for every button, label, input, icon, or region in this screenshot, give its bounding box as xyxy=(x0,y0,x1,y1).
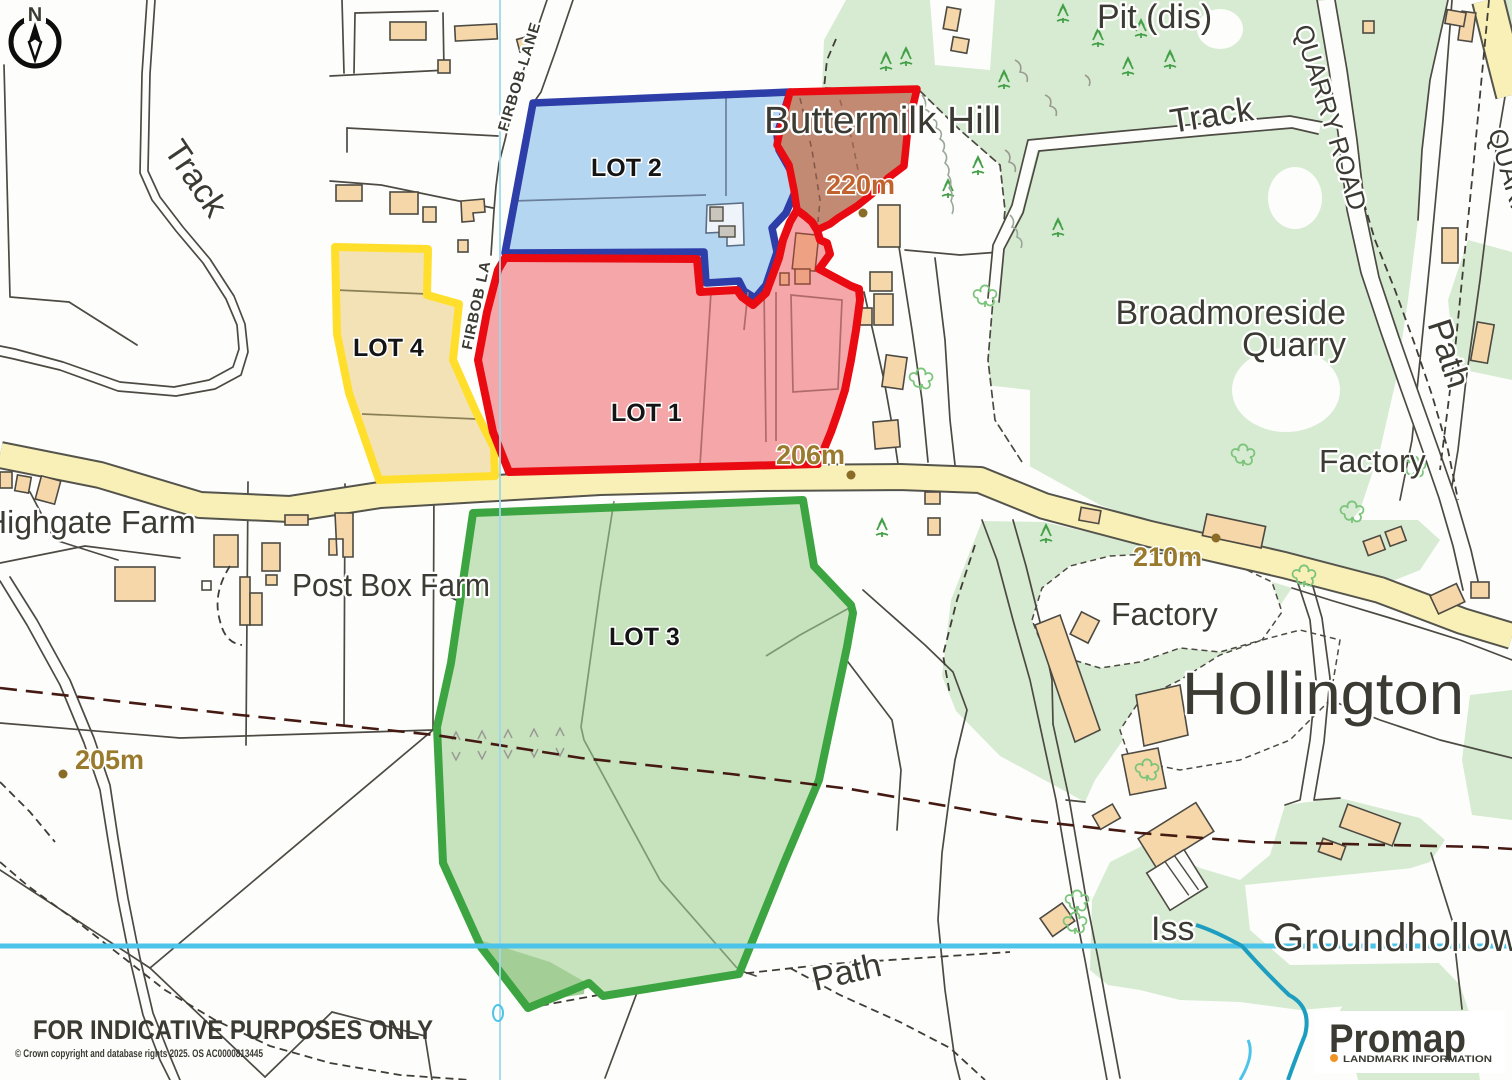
svg-text:Iss: Iss xyxy=(1151,910,1194,948)
svg-text:LOT 4: LOT 4 xyxy=(353,334,424,362)
svg-text:Hollington: Hollington xyxy=(1182,660,1464,727)
svg-text:LOT 2: LOT 2 xyxy=(591,154,662,182)
svg-text:© Crown copyright and database: © Crown copyright and database rights 20… xyxy=(15,1048,263,1060)
svg-text:205m: 205m xyxy=(75,745,144,775)
svg-text:Groundhollow: Groundhollow xyxy=(1273,916,1512,960)
svg-text:Factory: Factory xyxy=(1111,596,1218,632)
svg-text:Buttermilk Hill: Buttermilk Hill xyxy=(764,100,1001,142)
svg-text:FOR INDICATIVE PURPOSES ONLY: FOR INDICATIVE PURPOSES ONLY xyxy=(33,1015,433,1045)
svg-text:Highgate Farm: Highgate Farm xyxy=(0,504,196,540)
svg-text:Factory: Factory xyxy=(1319,443,1426,479)
svg-text:LANDMARK INFORMATION: LANDMARK INFORMATION xyxy=(1343,1054,1492,1065)
svg-text:220m: 220m xyxy=(826,170,895,200)
svg-text:LOT 3: LOT 3 xyxy=(609,623,680,651)
svg-text:210m: 210m xyxy=(1133,542,1202,572)
svg-text:Pit (dis): Pit (dis) xyxy=(1097,0,1212,36)
svg-text:LOT 1: LOT 1 xyxy=(611,399,682,427)
svg-text:206m: 206m xyxy=(776,440,845,470)
svg-text:N: N xyxy=(28,4,42,26)
svg-text:Quarry: Quarry xyxy=(1242,326,1346,364)
svg-text:Post Box Farm: Post Box Farm xyxy=(292,567,490,603)
